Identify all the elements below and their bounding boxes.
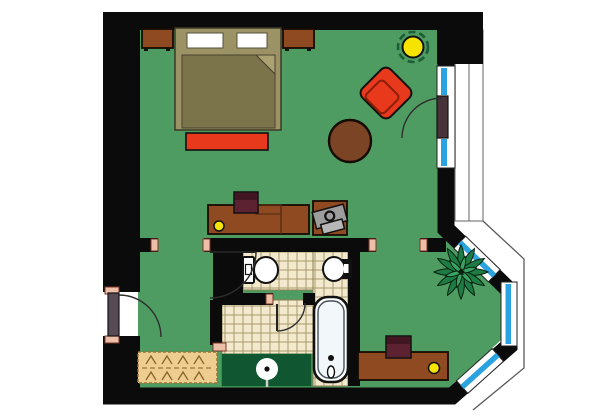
pillow-right xyxy=(237,33,267,48)
desk-chair xyxy=(234,192,258,213)
bay-window-middle xyxy=(501,282,517,346)
top-wall xyxy=(103,12,483,30)
blanket xyxy=(182,55,275,128)
toilet xyxy=(243,257,278,283)
round-coffee-table xyxy=(329,120,371,162)
door-frame-cap xyxy=(369,239,376,251)
nightstand-left xyxy=(142,29,173,48)
nightstand-right xyxy=(283,29,314,48)
bathroom-north-wall xyxy=(204,238,376,252)
door-frame-cap xyxy=(203,239,210,251)
pillow-left xyxy=(187,33,223,48)
nightstand-foot xyxy=(166,48,170,51)
nightstand-foot xyxy=(144,48,148,51)
door-frame-cap xyxy=(213,343,226,351)
ceiling-lamp-yellow xyxy=(403,37,424,58)
floor-plan-canvas xyxy=(0,0,600,419)
top-right-corner-wall xyxy=(437,12,483,64)
floor-plan xyxy=(0,0,600,419)
bathtub xyxy=(314,297,348,382)
tub-drain xyxy=(328,355,334,361)
nightstand-foot xyxy=(307,48,311,51)
wall-sink xyxy=(323,257,352,281)
bathroom-hall-floor xyxy=(222,300,313,354)
desk-lamp xyxy=(214,221,224,231)
bathroom-hall-west-wall xyxy=(210,300,222,345)
rug xyxy=(138,352,217,383)
bed-bench xyxy=(186,133,268,150)
left-wall-lower xyxy=(103,336,140,404)
nightstand-foot xyxy=(285,48,289,51)
door-frame-cap xyxy=(266,294,273,304)
door-frame-cap xyxy=(420,239,427,251)
tub-faucet xyxy=(328,366,335,378)
second-desk-lamp xyxy=(429,363,440,374)
second-desk-chair xyxy=(386,336,411,358)
left-wall-upper xyxy=(103,12,140,292)
door-frame-cap xyxy=(151,239,158,251)
